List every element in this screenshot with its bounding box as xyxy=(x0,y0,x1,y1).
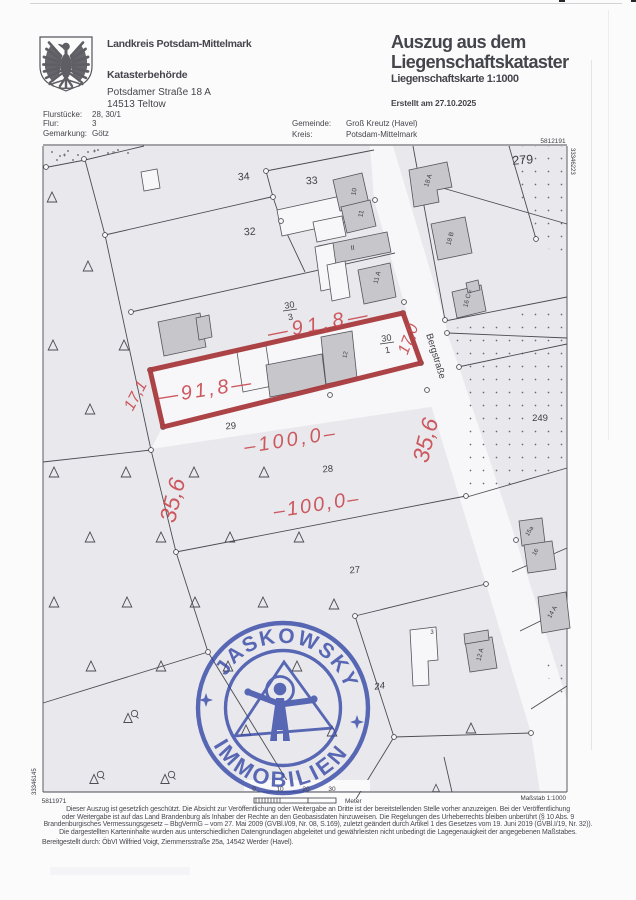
svg-text:0: 0 xyxy=(252,786,256,793)
svg-text:10: 10 xyxy=(276,786,284,793)
svg-text:34: 34 xyxy=(238,171,251,184)
svg-text:27: 27 xyxy=(349,565,360,577)
svg-text:32: 32 xyxy=(244,226,257,239)
svg-text:5811971: 5811971 xyxy=(42,798,67,805)
svg-text:Meter: Meter xyxy=(345,798,362,805)
svg-text:249: 249 xyxy=(532,413,548,424)
svg-text:33: 33 xyxy=(306,175,319,188)
svg-text:33346145: 33346145 xyxy=(32,768,38,795)
svg-text:279: 279 xyxy=(512,152,534,167)
svg-text:20: 20 xyxy=(302,786,310,793)
svg-text:30: 30 xyxy=(328,786,336,793)
svg-text:28: 28 xyxy=(322,464,333,476)
svg-text:24: 24 xyxy=(373,680,386,693)
svg-text:5812191: 5812191 xyxy=(540,138,566,145)
svg-text:33346223: 33346223 xyxy=(569,148,575,175)
svg-text:29: 29 xyxy=(225,421,236,433)
svg-text:Maßstab 1:1000: Maßstab 1:1000 xyxy=(520,795,566,802)
